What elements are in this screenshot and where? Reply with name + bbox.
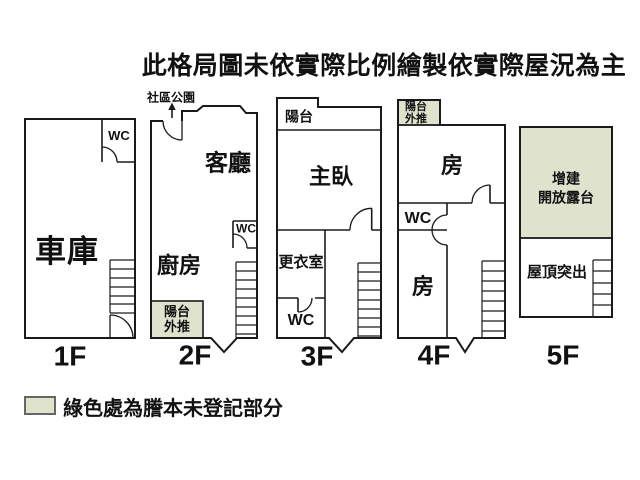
- park-label: 社區公園: [147, 91, 195, 104]
- room-wall-4f: [398, 185, 505, 203]
- door-arc-3f-master: [350, 208, 372, 230]
- floor-label-1f: 1F: [54, 342, 87, 373]
- balcony-push-label-4f-line2: 外推: [405, 113, 427, 125]
- stairs-4f: [482, 261, 505, 338]
- legend-text: 綠色處為謄本未登記部分: [63, 392, 283, 421]
- room-label-room-top-4f: 房: [441, 154, 463, 178]
- balcony-push-label-4f-line1: 陽台: [405, 101, 427, 113]
- room-label-wc-3f: WC: [288, 312, 315, 330]
- terrace-label-line2: 開放露台: [538, 190, 594, 205]
- room-label-wc-2f: WC: [236, 222, 256, 235]
- room-label-dressing-room: 更衣室: [278, 255, 323, 272]
- diagram-title: 此格局圖未依實際比例繪製依實際屋況為主: [140, 46, 628, 82]
- room-label-room-bottom-4f: 房: [412, 275, 434, 299]
- door-arc-4f-room: [472, 185, 490, 203]
- floorplan-diagram: 此格局圖未依實際比例繪製依實際屋況為主 車庫 WC 1F 社區公園 客廳 廚房 …: [0, 0, 640, 480]
- park-direction-arrow: [168, 103, 175, 119]
- room-label-living: 客廳: [205, 150, 251, 175]
- legend-green-swatch: [24, 396, 56, 415]
- room-label-wc-1f: WC: [108, 129, 130, 143]
- room-label-kitchen: 廚房: [157, 254, 201, 278]
- master-bedroom-wall-3f: [277, 208, 381, 230]
- wc-room-3f: [277, 298, 325, 312]
- room-label-garage: 車庫: [35, 235, 99, 269]
- room-label-roof-protrusion: 屋頂突出: [527, 265, 587, 282]
- room-label-balcony-3f: 陽台: [285, 109, 313, 124]
- floor-label-3f: 3F: [301, 342, 334, 373]
- door-arc-2f-entry: [163, 121, 182, 140]
- door-arc-1f-entry: [110, 315, 133, 338]
- floor-label-2f: 2F: [179, 341, 212, 372]
- floor-plan-5f: [520, 127, 612, 317]
- stairs-2f: [236, 262, 257, 338]
- stairs-3f: [358, 263, 381, 338]
- terrace-label-line1: 增建: [552, 171, 580, 186]
- door-arc-3f-wc: [298, 298, 312, 312]
- balcony-push-label-2f-line2: 外推: [164, 320, 190, 334]
- room-label-wc-4f: WC: [405, 210, 432, 228]
- stairs-1f: [110, 260, 135, 313]
- stairs-5f: [593, 260, 612, 317]
- floor-label-5f: 5F: [547, 341, 580, 372]
- floor-label-4f: 4F: [418, 341, 451, 372]
- door-arc-1f-wc: [102, 147, 117, 162]
- room-label-master-bedroom: 主臥: [309, 165, 353, 189]
- floor-plan-1f: [25, 119, 135, 338]
- balcony-push-label-2f-line1: 陽台: [164, 305, 190, 319]
- door-arc-2f-wc: [233, 234, 247, 248]
